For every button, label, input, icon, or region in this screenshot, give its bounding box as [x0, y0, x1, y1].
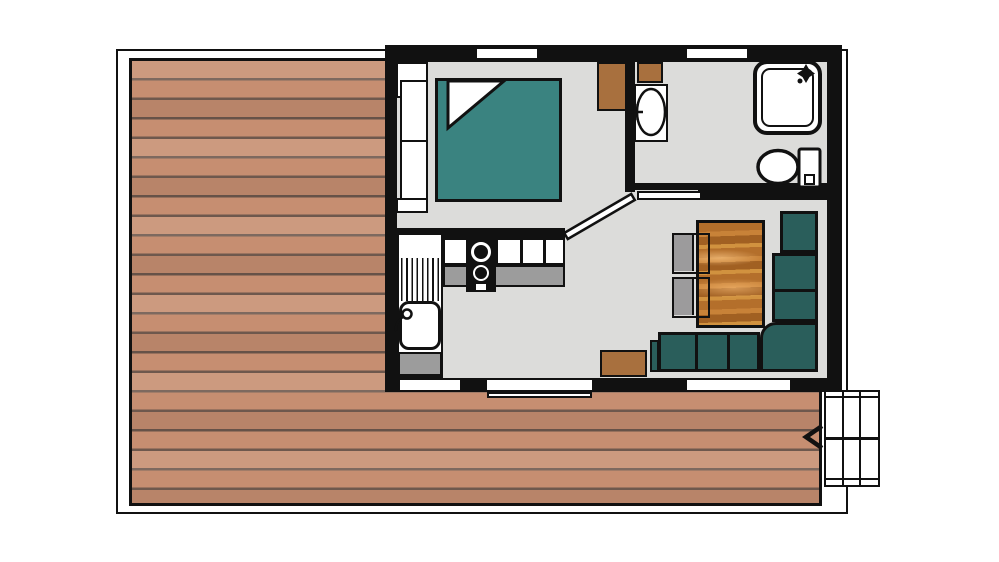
window-living-bottom	[687, 380, 790, 390]
sofa-armrest-left	[650, 340, 659, 372]
kitchen-counter-left-end	[398, 352, 442, 376]
chair-1	[672, 233, 710, 274]
stairs-top-line	[826, 396, 878, 398]
window-kitchen-bottom	[400, 380, 460, 390]
stove-control	[476, 284, 486, 290]
sofa-cushion-divider	[695, 335, 698, 369]
sofa-cushion-divider	[727, 335, 730, 369]
nightstand-bottom	[396, 198, 428, 213]
stairs-landing-line	[826, 437, 878, 440]
kitchen-sink	[399, 301, 441, 350]
shower	[753, 60, 822, 135]
bathroom-door-leaf	[637, 191, 702, 200]
counter-divider	[543, 240, 546, 263]
sofa-cushion-divider	[775, 289, 815, 292]
chair-2	[672, 277, 710, 318]
stairs	[824, 390, 880, 487]
burner-large	[471, 242, 491, 262]
sliding-door-threshold	[487, 392, 592, 398]
wall-bathroom-lintel	[630, 183, 700, 190]
sofa-right-column	[772, 253, 818, 322]
burner-small	[473, 265, 489, 281]
cabinet-bathroom	[637, 62, 663, 83]
sofa-corner	[760, 322, 818, 372]
stairs-bottom-line	[826, 478, 878, 480]
kitchen-counter-top	[443, 238, 565, 265]
vanity-counter	[634, 84, 668, 142]
sofa-bottom-row	[658, 332, 760, 372]
chair-seat	[674, 279, 694, 315]
double-bed	[435, 78, 562, 202]
wall-bathroom-bottom	[698, 183, 827, 200]
headboard-lower	[400, 140, 428, 200]
shower-tray-line	[761, 68, 814, 127]
side-cabinet-living	[600, 350, 647, 377]
drainboard	[401, 258, 439, 301]
window-bathroom-top	[687, 49, 747, 58]
wardrobe-bedroom	[597, 62, 627, 111]
sliding-door-bottom	[487, 380, 592, 390]
counter-divider	[520, 240, 523, 263]
window-bedroom-top	[477, 49, 537, 58]
floor-plan-canvas	[0, 0, 999, 562]
headboard-upper	[400, 80, 428, 142]
stove	[466, 234, 496, 292]
chair-seat	[674, 235, 694, 271]
sofa-armrest-top	[780, 211, 818, 253]
kitchen-counter-top-front	[443, 265, 565, 287]
